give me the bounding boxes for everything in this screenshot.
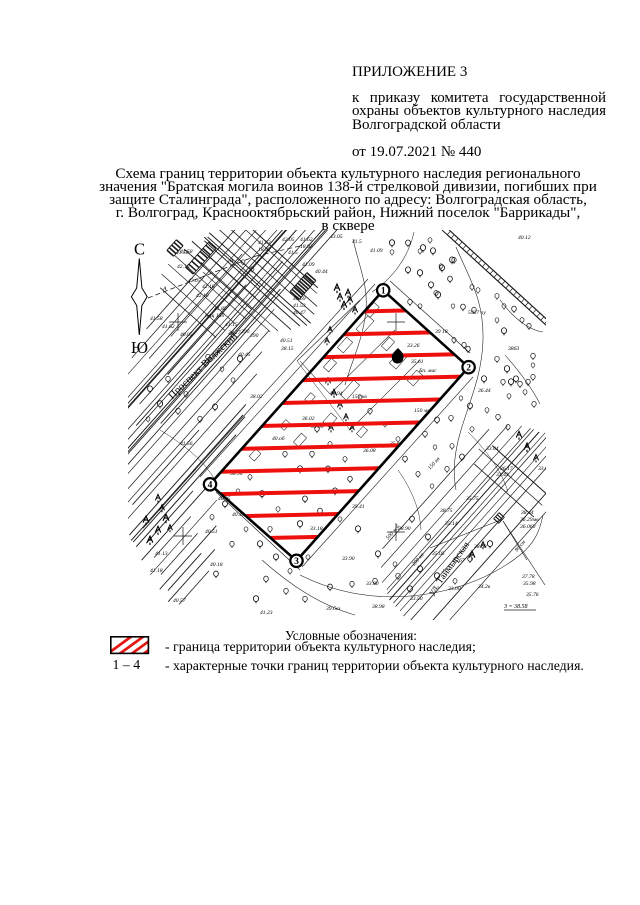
svg-text:2: 2: [466, 364, 471, 374]
svg-text:43.05: 43.05: [330, 234, 343, 240]
svg-text:41.85: 41.85: [214, 306, 227, 312]
svg-text:36.08: 36.08: [362, 448, 376, 454]
svg-text:33.00: 33.00: [447, 586, 461, 592]
svg-text:41.62: 41.62: [162, 324, 175, 330]
svg-text:38.94: 38.94: [329, 391, 343, 397]
svg-text:А: А: [229, 258, 234, 264]
svg-text:38.68: 38.68: [473, 544, 487, 550]
svg-text:40.69: 40.69: [293, 296, 306, 302]
svg-text:42.15: 42.15: [177, 264, 190, 270]
svg-text:150 кв: 150 кв: [427, 456, 442, 471]
svg-text:35.98: 35.98: [522, 581, 536, 587]
svg-text:37.78: 37.78: [521, 574, 535, 580]
svg-text:33.43: 33.43: [495, 472, 509, 478]
svg-text:33.00: 33.00: [365, 581, 379, 587]
svg-text:41.53: 41.53: [293, 303, 306, 309]
svg-text:35.14: 35.14: [444, 521, 458, 527]
svg-text:Ю: Ю: [131, 338, 148, 357]
svg-text:40.57: 40.57: [173, 598, 186, 604]
svg-text:41.5: 41.5: [352, 239, 362, 245]
svg-text:З = 38.58: З = 38.58: [504, 604, 528, 610]
svg-text:42.05: 42.05: [188, 278, 201, 284]
svg-text:18.92: 18.92: [300, 244, 313, 250]
svg-text:34.2в: 34.2в: [477, 584, 491, 590]
svg-text:3: 3: [294, 557, 299, 567]
svg-text:38.15: 38.15: [280, 346, 294, 352]
svg-text:33.04: 33.04: [537, 466, 551, 472]
svg-text:39.41: 39.41: [351, 504, 365, 510]
svg-text:41.15: 41.15: [225, 322, 238, 328]
svg-text:41.56: 41.56: [180, 441, 193, 447]
svg-text:390: 390: [240, 329, 250, 335]
svg-text:18.92: 18.92: [258, 247, 271, 253]
svg-text:36.44: 36.44: [477, 388, 491, 394]
svg-text:пещ 150: пещ 150: [205, 313, 224, 319]
svg-text:41.62: 41.62: [300, 237, 313, 243]
svg-text:38.75: 38.75: [439, 508, 453, 514]
svg-text:5937 пу: 5937 пу: [468, 310, 486, 316]
svg-text:41.5: 41.5: [288, 250, 298, 256]
svg-text:40.18: 40.18: [210, 562, 223, 568]
svg-text:40.51: 40.51: [205, 529, 218, 535]
svg-text:40.об: 40.об: [272, 435, 285, 442]
svg-text:33.90: 33.90: [341, 556, 355, 562]
svg-text:39.без: 39.без: [325, 605, 341, 612]
svg-text:42.10: 42.10: [196, 293, 209, 299]
svg-text:42.10: 42.10: [202, 284, 215, 290]
svg-text:40.47: 40.47: [293, 310, 306, 316]
svg-text:41.18: 41.18: [150, 568, 163, 574]
svg-text:33.26: 33.26: [406, 343, 420, 349]
svg-text:С: С: [134, 240, 145, 259]
svg-text:41.09: 41.09: [302, 262, 315, 268]
svg-text:41.09: 41.09: [370, 248, 383, 254]
svg-text:41.62: 41.62: [258, 240, 271, 246]
svg-text:41.13: 41.13: [155, 551, 168, 557]
svg-text:3863: 3863: [507, 346, 519, 352]
svg-text:390: 390: [249, 333, 259, 339]
svg-text:38.44: 38.44: [520, 510, 534, 516]
svg-text:38.02: 38.02: [249, 394, 263, 400]
svg-text:35.05: 35.05: [431, 551, 445, 557]
svg-text:36.29мв: 36.29мв: [519, 517, 539, 523]
svg-text:33.04: 33.04: [485, 446, 499, 452]
svg-text:41.23: 41.23: [260, 610, 273, 616]
svg-text:А: А: [162, 286, 167, 292]
svg-text:33.50: 33.50: [409, 596, 423, 602]
svg-text:40.44: 40.44: [315, 269, 328, 275]
svg-text:1: 1: [381, 287, 386, 297]
svg-text:38.98: 38.98: [371, 604, 385, 610]
svg-text:40.45: 40.45: [238, 352, 251, 358]
svg-text:35.61: 35.61: [410, 359, 424, 365]
svg-text:35.76: 35.76: [525, 592, 539, 598]
svg-text:4: 4: [208, 481, 213, 491]
svg-text:40.51: 40.51: [280, 338, 293, 344]
svg-text:Бп. мас: Бп. мас: [418, 368, 437, 374]
svg-text:39 18: 39 18: [434, 329, 448, 335]
svg-text:150 кв: 150 кв: [352, 394, 367, 400]
svg-text:33.18: 33.18: [309, 526, 323, 532]
svg-text:42.05: 42.05: [282, 237, 295, 243]
svg-text:41.58: 41.58: [150, 316, 163, 322]
svg-text:36.060: 36.060: [519, 524, 536, 530]
svg-text:41.58: 41.58: [180, 249, 193, 255]
svg-text:200 кв: 200 кв: [411, 552, 426, 567]
svg-text:40.12: 40.12: [518, 235, 531, 241]
svg-text:36.02: 36.02: [301, 416, 315, 422]
svg-text:40.05: 40.05: [180, 332, 193, 338]
svg-text:35.75: 35.75: [465, 496, 479, 502]
